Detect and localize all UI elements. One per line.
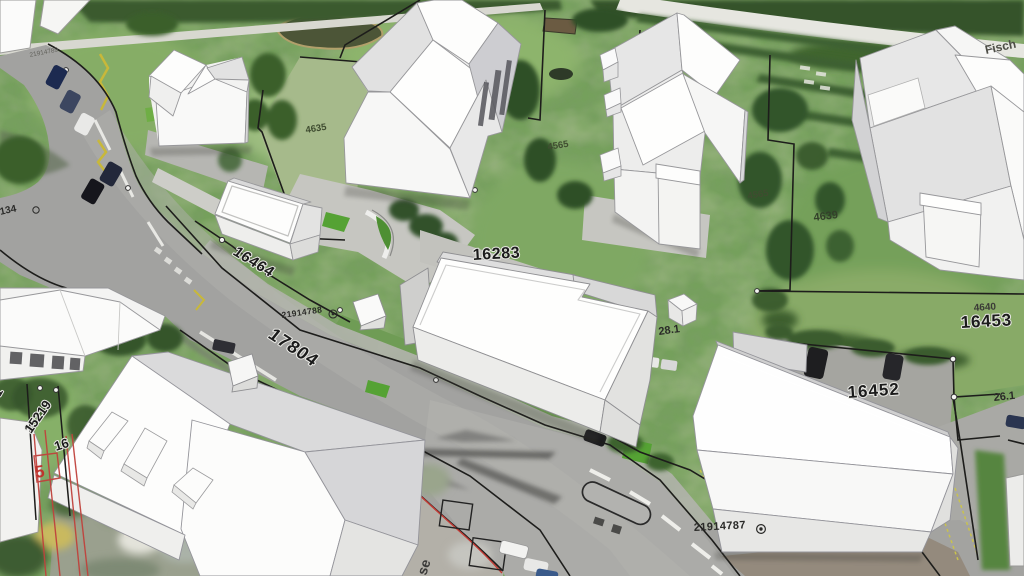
svg-text:16452: 16452 (847, 379, 900, 402)
svg-text:26.1: 26.1 (993, 390, 1016, 404)
svg-text:16453: 16453 (960, 310, 1012, 332)
svg-text:4640: 4640 (973, 301, 996, 314)
svg-text:16283: 16283 (472, 245, 520, 264)
